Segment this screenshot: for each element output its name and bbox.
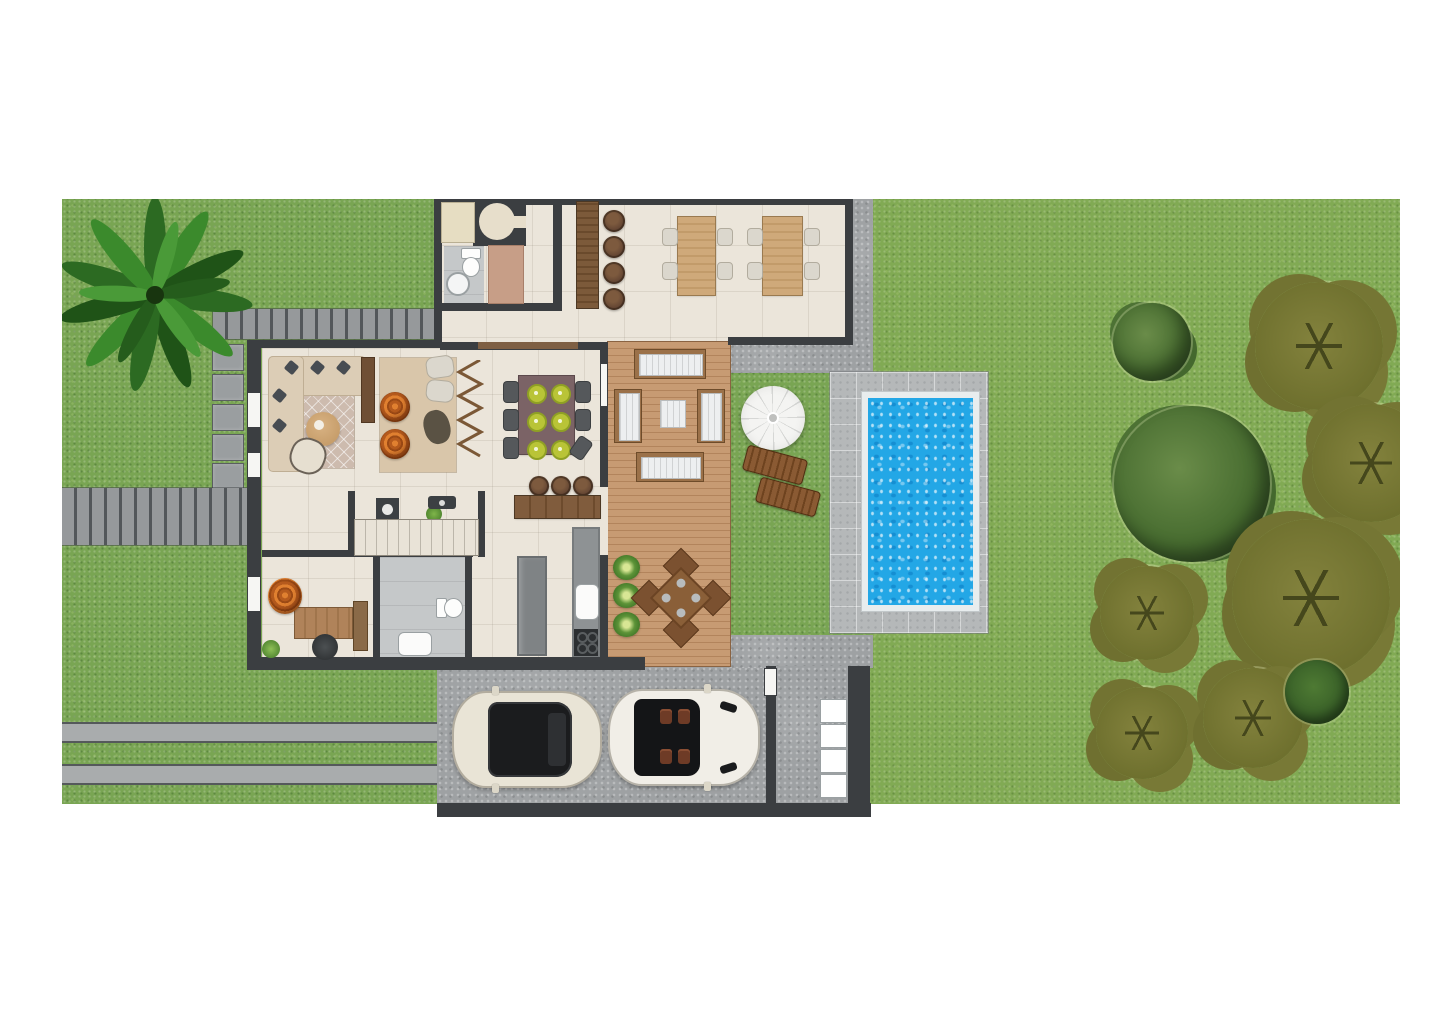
entry-closet (442, 203, 474, 242)
garden-bush (1285, 660, 1349, 724)
stepping-stone (213, 435, 243, 460)
dining-chair (747, 228, 763, 246)
olive-tree (1096, 687, 1188, 779)
island-stool (573, 476, 593, 496)
bench-cushion (641, 457, 701, 479)
car-mirror (704, 684, 711, 693)
office-plant (262, 640, 280, 658)
burner (587, 632, 598, 643)
wall-stairs-right (478, 491, 485, 557)
shower-mat (489, 246, 523, 303)
place-setting (551, 384, 571, 404)
bathroom2-sink (398, 632, 432, 656)
floor-plan-canvas (0, 0, 1431, 1012)
step-paver (821, 700, 846, 722)
deck-door-opening (600, 487, 608, 555)
stepping-stone (213, 464, 243, 489)
concrete-apron (728, 635, 873, 668)
dining-chair (804, 262, 820, 280)
dining-chair (804, 228, 820, 246)
island-stool (529, 476, 549, 496)
entry-round-table (479, 203, 515, 240)
nook-chair (504, 382, 518, 402)
bench-cushion (639, 354, 703, 376)
window-deck (600, 363, 608, 407)
path-to-pool (728, 342, 873, 373)
wall-great-left (434, 199, 442, 343)
parasol (741, 386, 805, 450)
nook-chair (576, 382, 590, 402)
staircase (355, 520, 478, 555)
bar-stool (603, 236, 625, 258)
car-seat (660, 709, 672, 724)
wall-great-right (845, 199, 853, 345)
bar-stool (603, 210, 625, 232)
step-paver (821, 725, 846, 747)
deck-bench-bottom (637, 453, 703, 481)
place-setting (527, 440, 547, 460)
wall-dining-bottom (728, 337, 845, 345)
outdoor-plate (675, 606, 688, 619)
slatted-walkway-left (62, 488, 250, 545)
boundary-wall-bottom (437, 803, 871, 817)
stepping-stone (213, 405, 243, 430)
wall-bottom (255, 657, 645, 670)
step-paver (821, 775, 846, 797)
car-seat (678, 709, 690, 724)
fridge (517, 556, 547, 656)
palm-tree (62, 199, 260, 395)
sideboard-cabinet (478, 342, 578, 349)
wall-bath-kitchen (465, 557, 472, 657)
gas-hob (574, 629, 598, 656)
wall-bath1-bottom (440, 303, 562, 311)
window-office (247, 576, 261, 612)
dining-chair (717, 228, 733, 246)
place-setting (527, 384, 547, 404)
washing-machine (376, 498, 399, 521)
side-gate (764, 668, 777, 696)
car-mirror (492, 784, 499, 793)
nook-chair (504, 410, 518, 430)
dining-chair (662, 228, 678, 246)
sofa-cushion (619, 393, 640, 441)
burner (587, 643, 598, 654)
deck-sofa-right (698, 390, 724, 442)
wall-living-top (255, 340, 440, 348)
road-strip-1 (62, 722, 437, 743)
kitchen-sink (575, 584, 599, 620)
wall-stairs-left (348, 491, 355, 557)
olive-tree (1232, 519, 1390, 677)
outdoor-plate (660, 592, 673, 605)
round-washbasin (446, 272, 470, 296)
dining-table-1 (678, 217, 715, 295)
nook-chair (576, 410, 590, 430)
papasan-chair (380, 392, 410, 422)
site-plan (62, 199, 1400, 819)
place-setting (527, 412, 547, 432)
dining-chair (717, 262, 733, 280)
accordion-glass-door (456, 360, 484, 460)
bar-stool (603, 262, 625, 284)
olive-tree (1255, 282, 1383, 410)
side-strip-right-of-house (853, 199, 873, 343)
deck-sofa-left (615, 390, 641, 442)
dining-chair (662, 262, 678, 280)
olive-tree (1100, 566, 1194, 660)
papasan-chair (380, 429, 410, 459)
entry-steps (821, 700, 846, 797)
ceiling-fan-icon (428, 496, 456, 509)
deck-bench-top (635, 350, 705, 378)
round-tree-large (1114, 406, 1270, 562)
road-strip-2 (62, 764, 437, 785)
dining-chair (747, 262, 763, 280)
coffee-tray (314, 420, 324, 430)
window-living-2 (247, 452, 261, 478)
step-paver (821, 750, 846, 772)
office-lounge-chair (268, 578, 302, 614)
window-living (247, 392, 261, 428)
fan-hub (439, 500, 445, 506)
round-tree-small (1113, 303, 1191, 381)
deck-coffee-table (660, 400, 686, 428)
washer-door (382, 504, 393, 515)
sofa-cushion (701, 393, 722, 441)
bar-stool (603, 288, 625, 310)
breakfast-bar (577, 202, 598, 308)
entry-table-stub (512, 216, 526, 228)
cream-chair (425, 379, 455, 404)
agave-plant (613, 612, 640, 637)
island-stool (551, 476, 571, 496)
office-chair (312, 634, 338, 660)
dining-table-2 (763, 217, 802, 295)
outdoor-plate (689, 592, 702, 605)
car-open-cabin (634, 699, 700, 776)
console-table (362, 358, 374, 422)
island-counter (515, 496, 600, 518)
pool-water (868, 398, 973, 605)
car-mirror (492, 686, 499, 695)
car-seat (660, 749, 672, 764)
nook-chair (504, 438, 518, 458)
car-suv-sunroof (548, 713, 566, 766)
toilet2-bowl (444, 598, 463, 618)
wall-bath1-right (553, 199, 562, 311)
car-seat (678, 749, 690, 764)
corridor-right-wall (848, 666, 870, 805)
car-suv (452, 691, 602, 788)
car-convertible (608, 689, 760, 786)
bookcase (354, 602, 367, 650)
place-setting (551, 440, 571, 460)
car-mirror (704, 782, 711, 791)
wall-office-bath (373, 557, 380, 657)
agave-plant (613, 555, 640, 580)
outdoor-plate (675, 577, 688, 590)
place-setting (551, 412, 571, 432)
